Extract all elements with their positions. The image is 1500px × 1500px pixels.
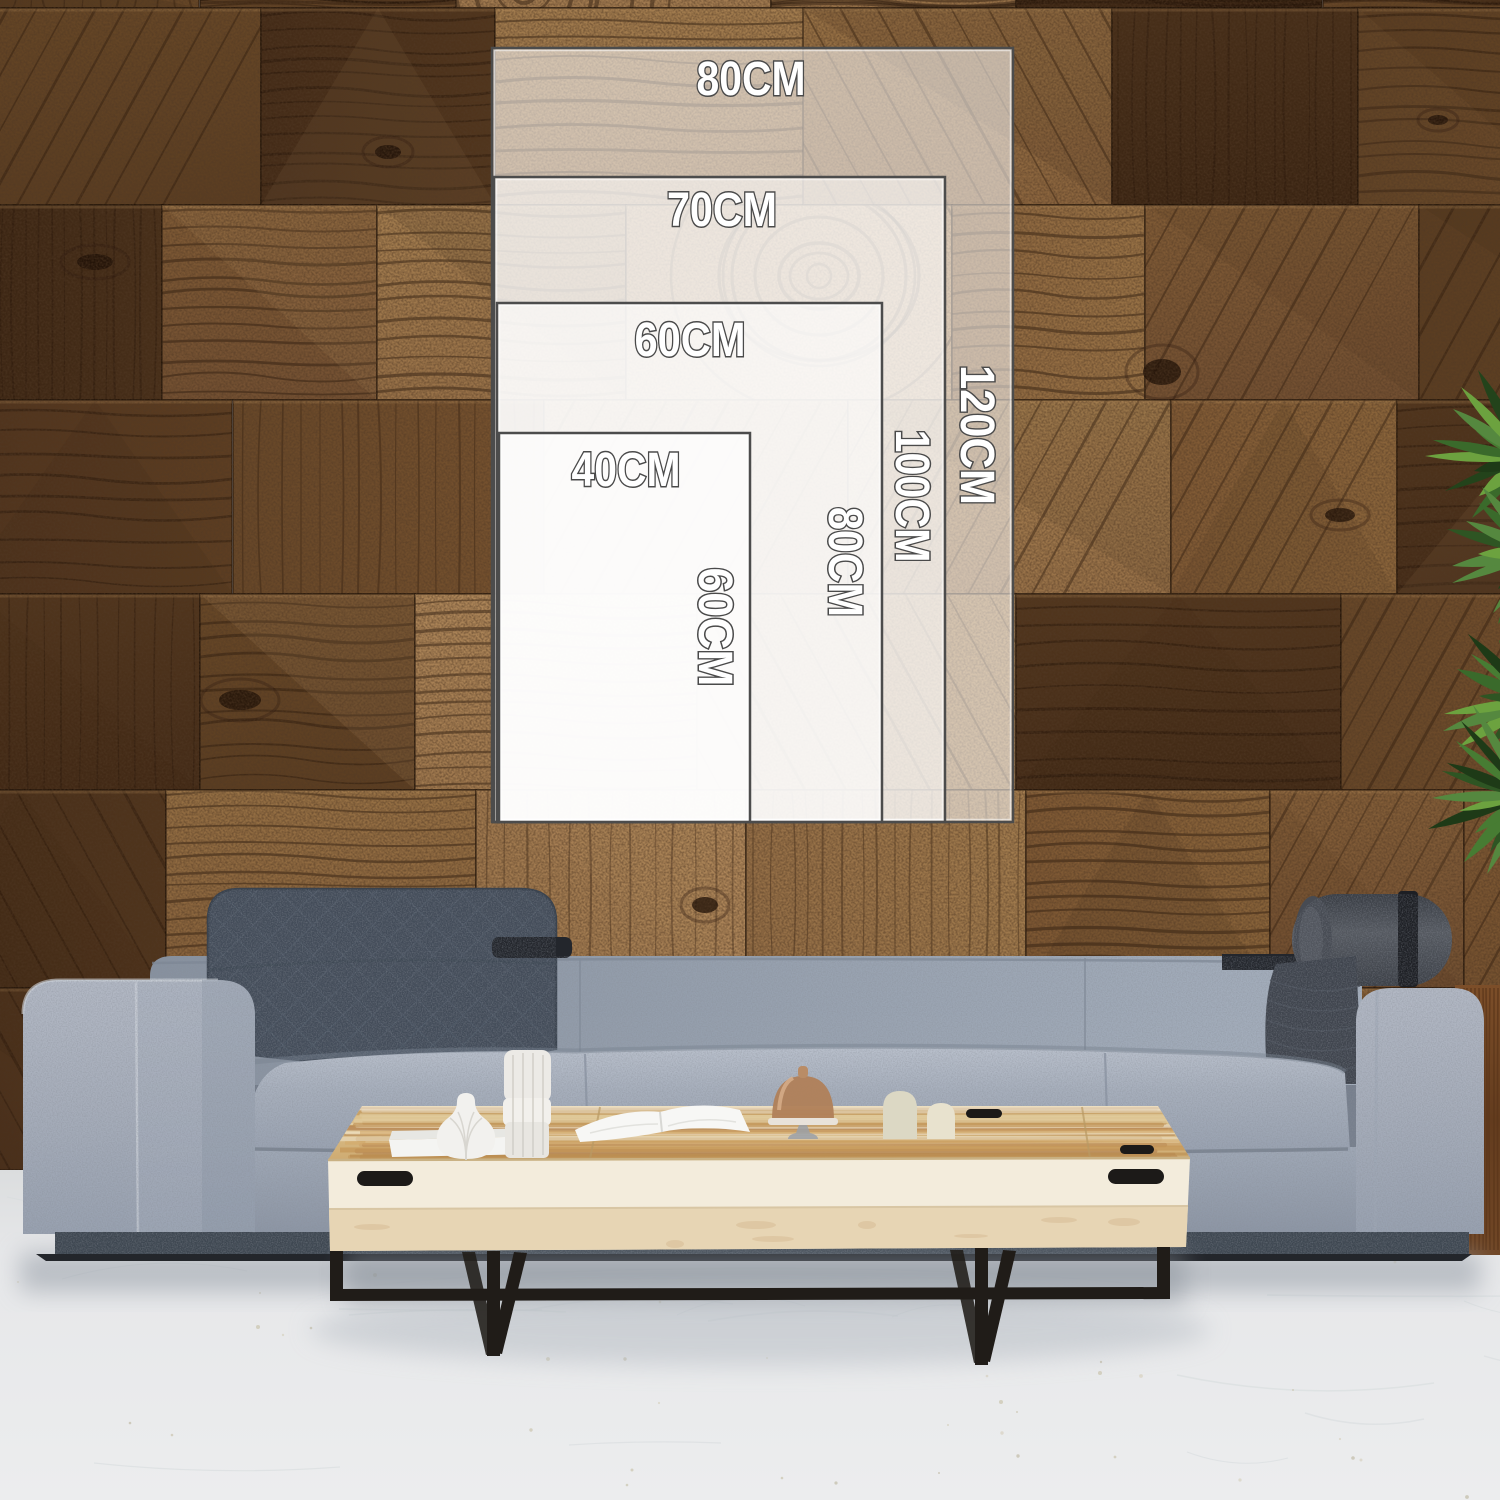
svg-text:80CM: 80CM <box>697 53 806 106</box>
svg-text:70CM: 70CM <box>667 184 777 237</box>
svg-text:60CM: 60CM <box>688 568 741 687</box>
svg-text:40CM: 40CM <box>572 444 681 497</box>
svg-text:120CM: 120CM <box>950 365 1003 505</box>
svg-text:60CM: 60CM <box>635 314 746 367</box>
svg-text:80CM: 80CM <box>818 507 871 617</box>
svg-text:100CM: 100CM <box>885 430 938 563</box>
